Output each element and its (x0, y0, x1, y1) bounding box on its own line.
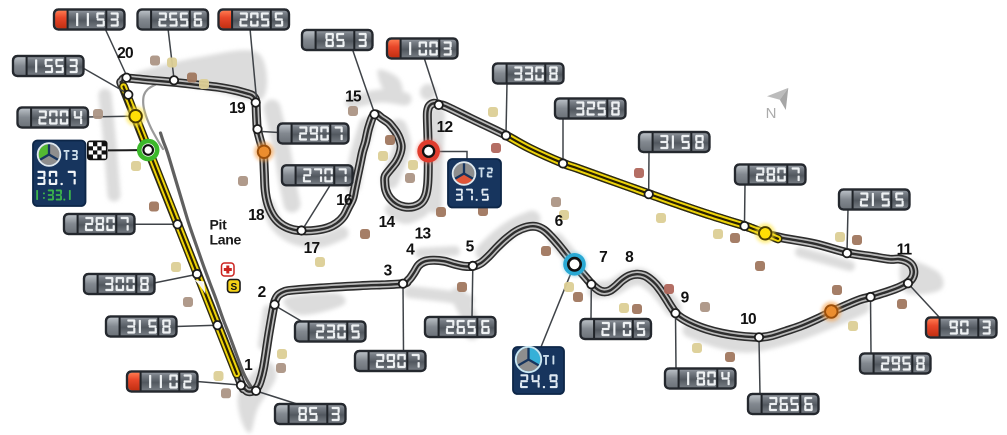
svg-text:12: 12 (437, 119, 453, 136)
svg-text:Lane: Lane (210, 231, 242, 247)
svg-text:8: 8 (625, 249, 634, 266)
svg-text:2: 2 (258, 284, 266, 301)
svg-text:17: 17 (304, 240, 320, 257)
svg-text:14: 14 (379, 214, 396, 231)
svg-text:10: 10 (740, 311, 756, 328)
svg-text:20: 20 (117, 45, 133, 62)
svg-text:16: 16 (336, 192, 353, 209)
svg-text:S: S (230, 282, 237, 293)
svg-text:9: 9 (681, 290, 690, 307)
svg-text:11: 11 (897, 242, 913, 259)
svg-text:15: 15 (345, 89, 362, 106)
svg-text:N: N (766, 105, 777, 122)
svg-text:19: 19 (229, 100, 246, 117)
svg-text:1: 1 (244, 357, 253, 374)
svg-text:4: 4 (406, 242, 415, 259)
svg-text:5: 5 (466, 239, 475, 256)
svg-text:18: 18 (248, 207, 265, 224)
svg-text:7: 7 (599, 249, 607, 266)
svg-text:3: 3 (384, 263, 393, 280)
svg-text:6: 6 (555, 213, 564, 230)
svg-text:Pit: Pit (210, 217, 228, 233)
svg-text:13: 13 (415, 226, 432, 243)
